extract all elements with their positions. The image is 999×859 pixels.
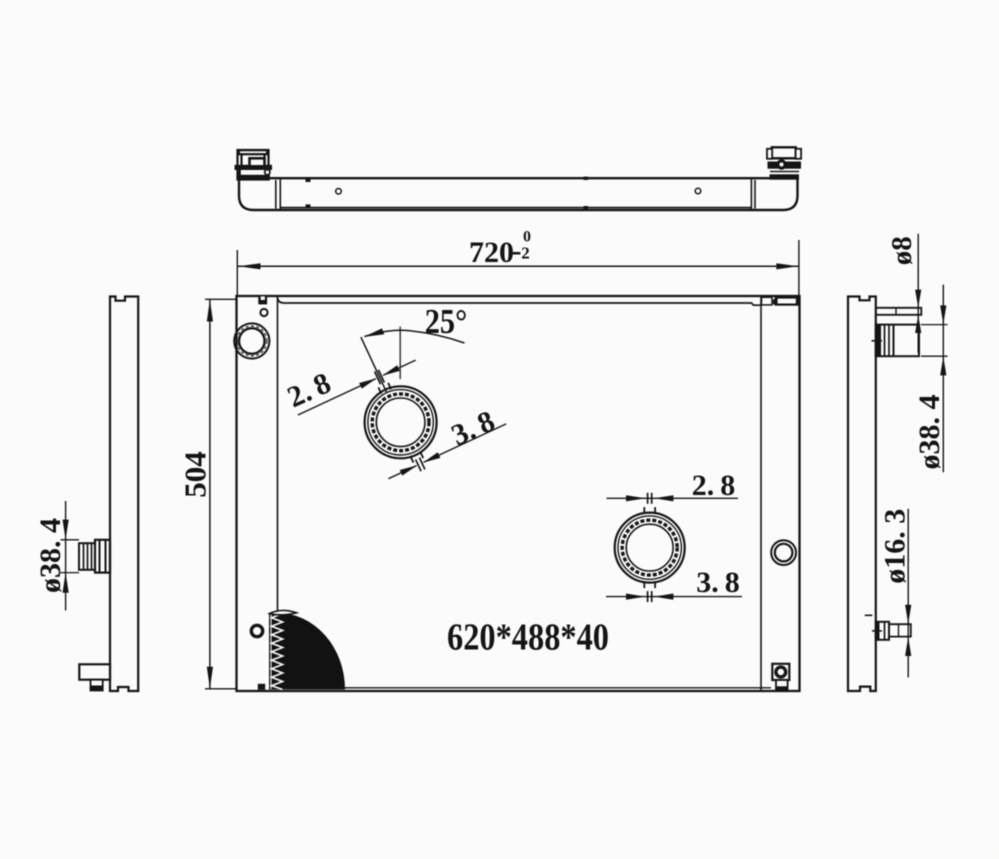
svg-text:504: 504 <box>178 451 213 498</box>
svg-text:ø16. 3: ø16. 3 <box>879 509 912 584</box>
svg-text:3. 8: 3. 8 <box>696 566 740 599</box>
svg-text:720: 720 <box>469 236 514 269</box>
svg-text:-: - <box>512 234 522 267</box>
svg-text:ø8: ø8 <box>886 236 918 265</box>
svg-text:2. 8: 2. 8 <box>692 469 736 502</box>
svg-text:620*488*40: 620*488*40 <box>447 615 609 658</box>
svg-text:2: 2 <box>521 244 530 263</box>
svg-text:ø38. 4: ø38. 4 <box>913 395 946 470</box>
svg-text:ø38. 4: ø38. 4 <box>34 518 67 593</box>
svg-text:25°: 25° <box>425 303 467 341</box>
